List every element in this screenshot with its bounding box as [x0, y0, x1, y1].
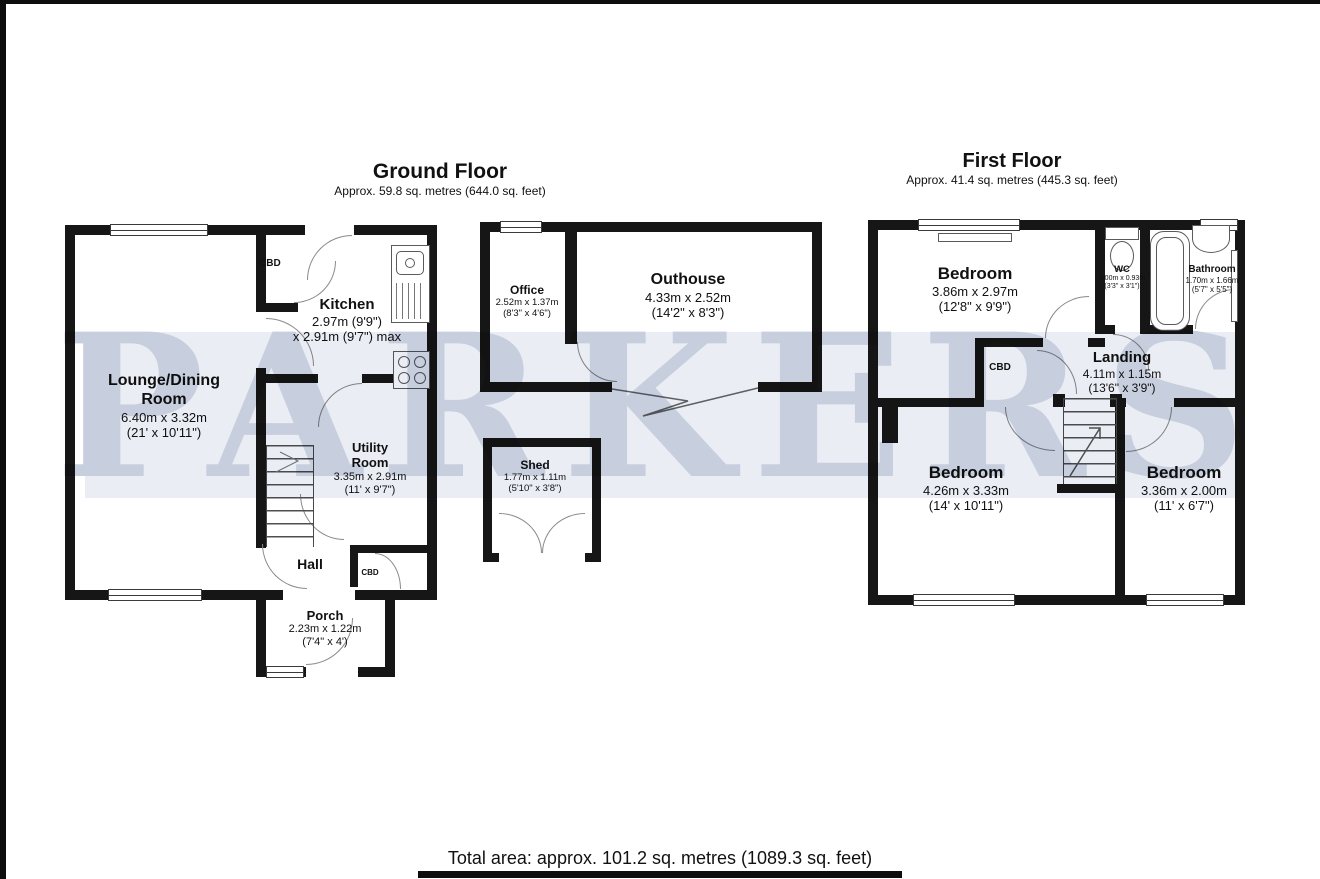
window: [500, 221, 542, 233]
stairs: [1063, 398, 1117, 484]
nm: Shed: [490, 458, 580, 472]
nm: Kitchen: [257, 296, 437, 314]
wall: [882, 407, 898, 443]
nm: Utility: [320, 440, 420, 455]
room-label-lounge: Lounge/Dining Room 6.40m x 3.32m (21' x …: [74, 372, 254, 440]
first-floor-subtitle: Approx. 41.4 sq. metres (445.3 sq. feet): [862, 173, 1162, 187]
burner-icon: [398, 372, 410, 384]
shed-door-arc: [542, 513, 585, 553]
s13: 2.97m (9'9"): [257, 314, 437, 329]
wall: [480, 382, 612, 392]
nm: Room: [74, 391, 254, 410]
toilet-icon: [1105, 227, 1139, 240]
s7: 1.00m x 0.93m: [1098, 275, 1146, 283]
burner-icon: [414, 356, 426, 368]
door-arc: [577, 342, 617, 382]
room-label-office: Office 2.52m x 1.37m (8'3" x 4'6"): [487, 283, 567, 320]
wall: [483, 553, 499, 562]
closet-label-cbd-landing: CBD: [980, 362, 1020, 374]
room-label-utility: Utility Room 3.35m x 2.91m (11' x 9'7"): [320, 440, 420, 497]
room-label-outhouse: Outhouse 4.33m x 2.52m (14'2" x 8'3"): [613, 271, 763, 321]
wall: [1088, 338, 1105, 347]
s13: 4.26m x 3.33m: [876, 483, 1056, 498]
nm: Bedroom: [1119, 463, 1249, 483]
wall: [758, 382, 822, 392]
room-label-bedroom3: Bedroom 3.36m x 2.00m (11' x 6'7"): [1119, 463, 1249, 514]
closet-label-cbd-hall: CBD: [355, 568, 385, 577]
wall-opening: [1126, 398, 1174, 407]
s13: 3.86m x 2.97m: [885, 284, 1065, 299]
room-label-bathroom: Bathroom 1.70m x 1.66m (5'7" x 5'5"): [1172, 264, 1252, 295]
nm: Bedroom: [876, 463, 1056, 483]
sink-drain-icon: [405, 258, 415, 268]
s11: (7'4" x 4'): [265, 636, 385, 649]
door-arc: [1126, 407, 1172, 452]
stairs: [266, 445, 314, 547]
s13: (21' x 10'11"): [74, 425, 254, 440]
wall: [812, 222, 822, 392]
floorplan-page: Ground Floor Approx. 59.8 sq. metres (64…: [0, 0, 1320, 879]
nm: Bedroom: [885, 264, 1065, 284]
room-label-kitchen: Kitchen 2.97m (9'9") x 2.91m (9'7") max: [257, 296, 437, 344]
wall: [266, 374, 318, 383]
wall: [1095, 325, 1115, 334]
stove-icon: [393, 351, 430, 389]
wall-opening: [306, 667, 358, 677]
room-label-wc: WC 1.00m x 0.93m (3'3" x 3'1"): [1098, 264, 1146, 292]
nm: WC: [1098, 264, 1146, 275]
door-arc: [1005, 407, 1055, 451]
wall-opening: [283, 590, 355, 600]
s9: (5'10" x 3'8"): [490, 483, 580, 494]
window: [913, 594, 1015, 606]
room-label-porch: Porch 2.23m x 1.22m (7'4" x 4'): [265, 608, 385, 649]
s13: (14' x 10'11"): [876, 498, 1056, 513]
wall: [350, 545, 358, 587]
bathroom-sink-icon: [1192, 225, 1230, 253]
shed-door-arc: [499, 513, 542, 553]
s13: (14'2" x 8'3"): [613, 305, 763, 320]
s11: (11' x 9'7"): [320, 484, 420, 497]
s13: (11' x 6'7"): [1119, 498, 1249, 513]
window: [1146, 594, 1224, 606]
wall: [483, 438, 601, 447]
wall: [868, 220, 878, 605]
nm: Room: [320, 455, 420, 470]
s9: (8'3" x 4'6"): [487, 308, 567, 319]
wall-opening: [305, 225, 354, 235]
window: [110, 224, 208, 236]
wall: [585, 553, 601, 562]
room-label-hall: Hall: [280, 556, 340, 573]
room-label-shed: Shed 1.77m x 1.11m (5'10" x 3'8"): [490, 458, 580, 495]
door-arc: [318, 383, 362, 427]
s11: 2.23m x 1.22m: [265, 623, 385, 636]
nm: Bathroom: [1172, 264, 1252, 276]
s8: 1.70m x 1.66m: [1172, 276, 1252, 285]
room-label-bedroom1: Bedroom 3.86m x 2.97m (12'8" x 9'9"): [885, 264, 1065, 315]
wall: [868, 398, 976, 407]
s13: 6.40m x 3.32m: [74, 410, 254, 425]
s9: 2.52m x 1.37m: [487, 297, 567, 308]
total-area-text: Total area: approx. 101.2 sq. metres (10…: [360, 848, 960, 869]
wall: [1057, 484, 1119, 493]
nm: Landing: [1047, 349, 1197, 367]
nm: Lounge/Dining: [74, 372, 254, 391]
footer-underline: [418, 871, 902, 878]
door-arc: [1195, 289, 1235, 329]
s8: (5'7" x 5'5"): [1172, 285, 1252, 294]
window: [266, 666, 304, 678]
nm: Porch: [265, 608, 385, 623]
window: [108, 589, 202, 601]
burner-icon: [398, 356, 410, 368]
wall: [592, 438, 601, 562]
first-floor-title: First Floor: [862, 150, 1162, 174]
radiator: [938, 233, 1012, 242]
ground-floor-subtitle: Approx. 59.8 sq. metres (644.0 sq. feet): [290, 184, 590, 198]
page-edge-top: [0, 0, 1320, 4]
wall: [483, 438, 492, 562]
burner-icon: [414, 372, 426, 384]
s9: 1.77m x 1.11m: [490, 472, 580, 483]
window: [918, 219, 1020, 231]
outhouse-open-side-break-line: [612, 388, 758, 416]
s13: (12'8" x 9'9"): [885, 299, 1065, 314]
s13: 3.36m x 2.00m: [1119, 483, 1249, 498]
room-label-landing: Landing 4.11m x 1.15m (13'6" x 3'9"): [1047, 349, 1197, 395]
ground-floor-title: Ground Floor: [290, 160, 590, 185]
s7: (3'3" x 3'1"): [1098, 283, 1146, 291]
wall: [975, 338, 1043, 347]
page-edge-left: [0, 0, 6, 879]
s13: x 2.91m (9'7") max: [257, 329, 437, 344]
s12: 4.11m x 1.15m: [1047, 367, 1197, 381]
s12: (13'6" x 3'9"): [1047, 381, 1197, 395]
wall: [350, 545, 428, 553]
wall: [385, 600, 395, 677]
wall: [256, 368, 266, 548]
nm: Outhouse: [613, 271, 763, 290]
s11: 3.35m x 2.91m: [320, 471, 420, 484]
room-label-bedroom2: Bedroom 4.26m x 3.33m (14' x 10'11"): [876, 463, 1056, 514]
closet-label-cbd-kitchen: CBD: [259, 258, 295, 270]
nm: Office: [487, 283, 567, 297]
s13: 4.33m x 2.52m: [613, 290, 763, 305]
